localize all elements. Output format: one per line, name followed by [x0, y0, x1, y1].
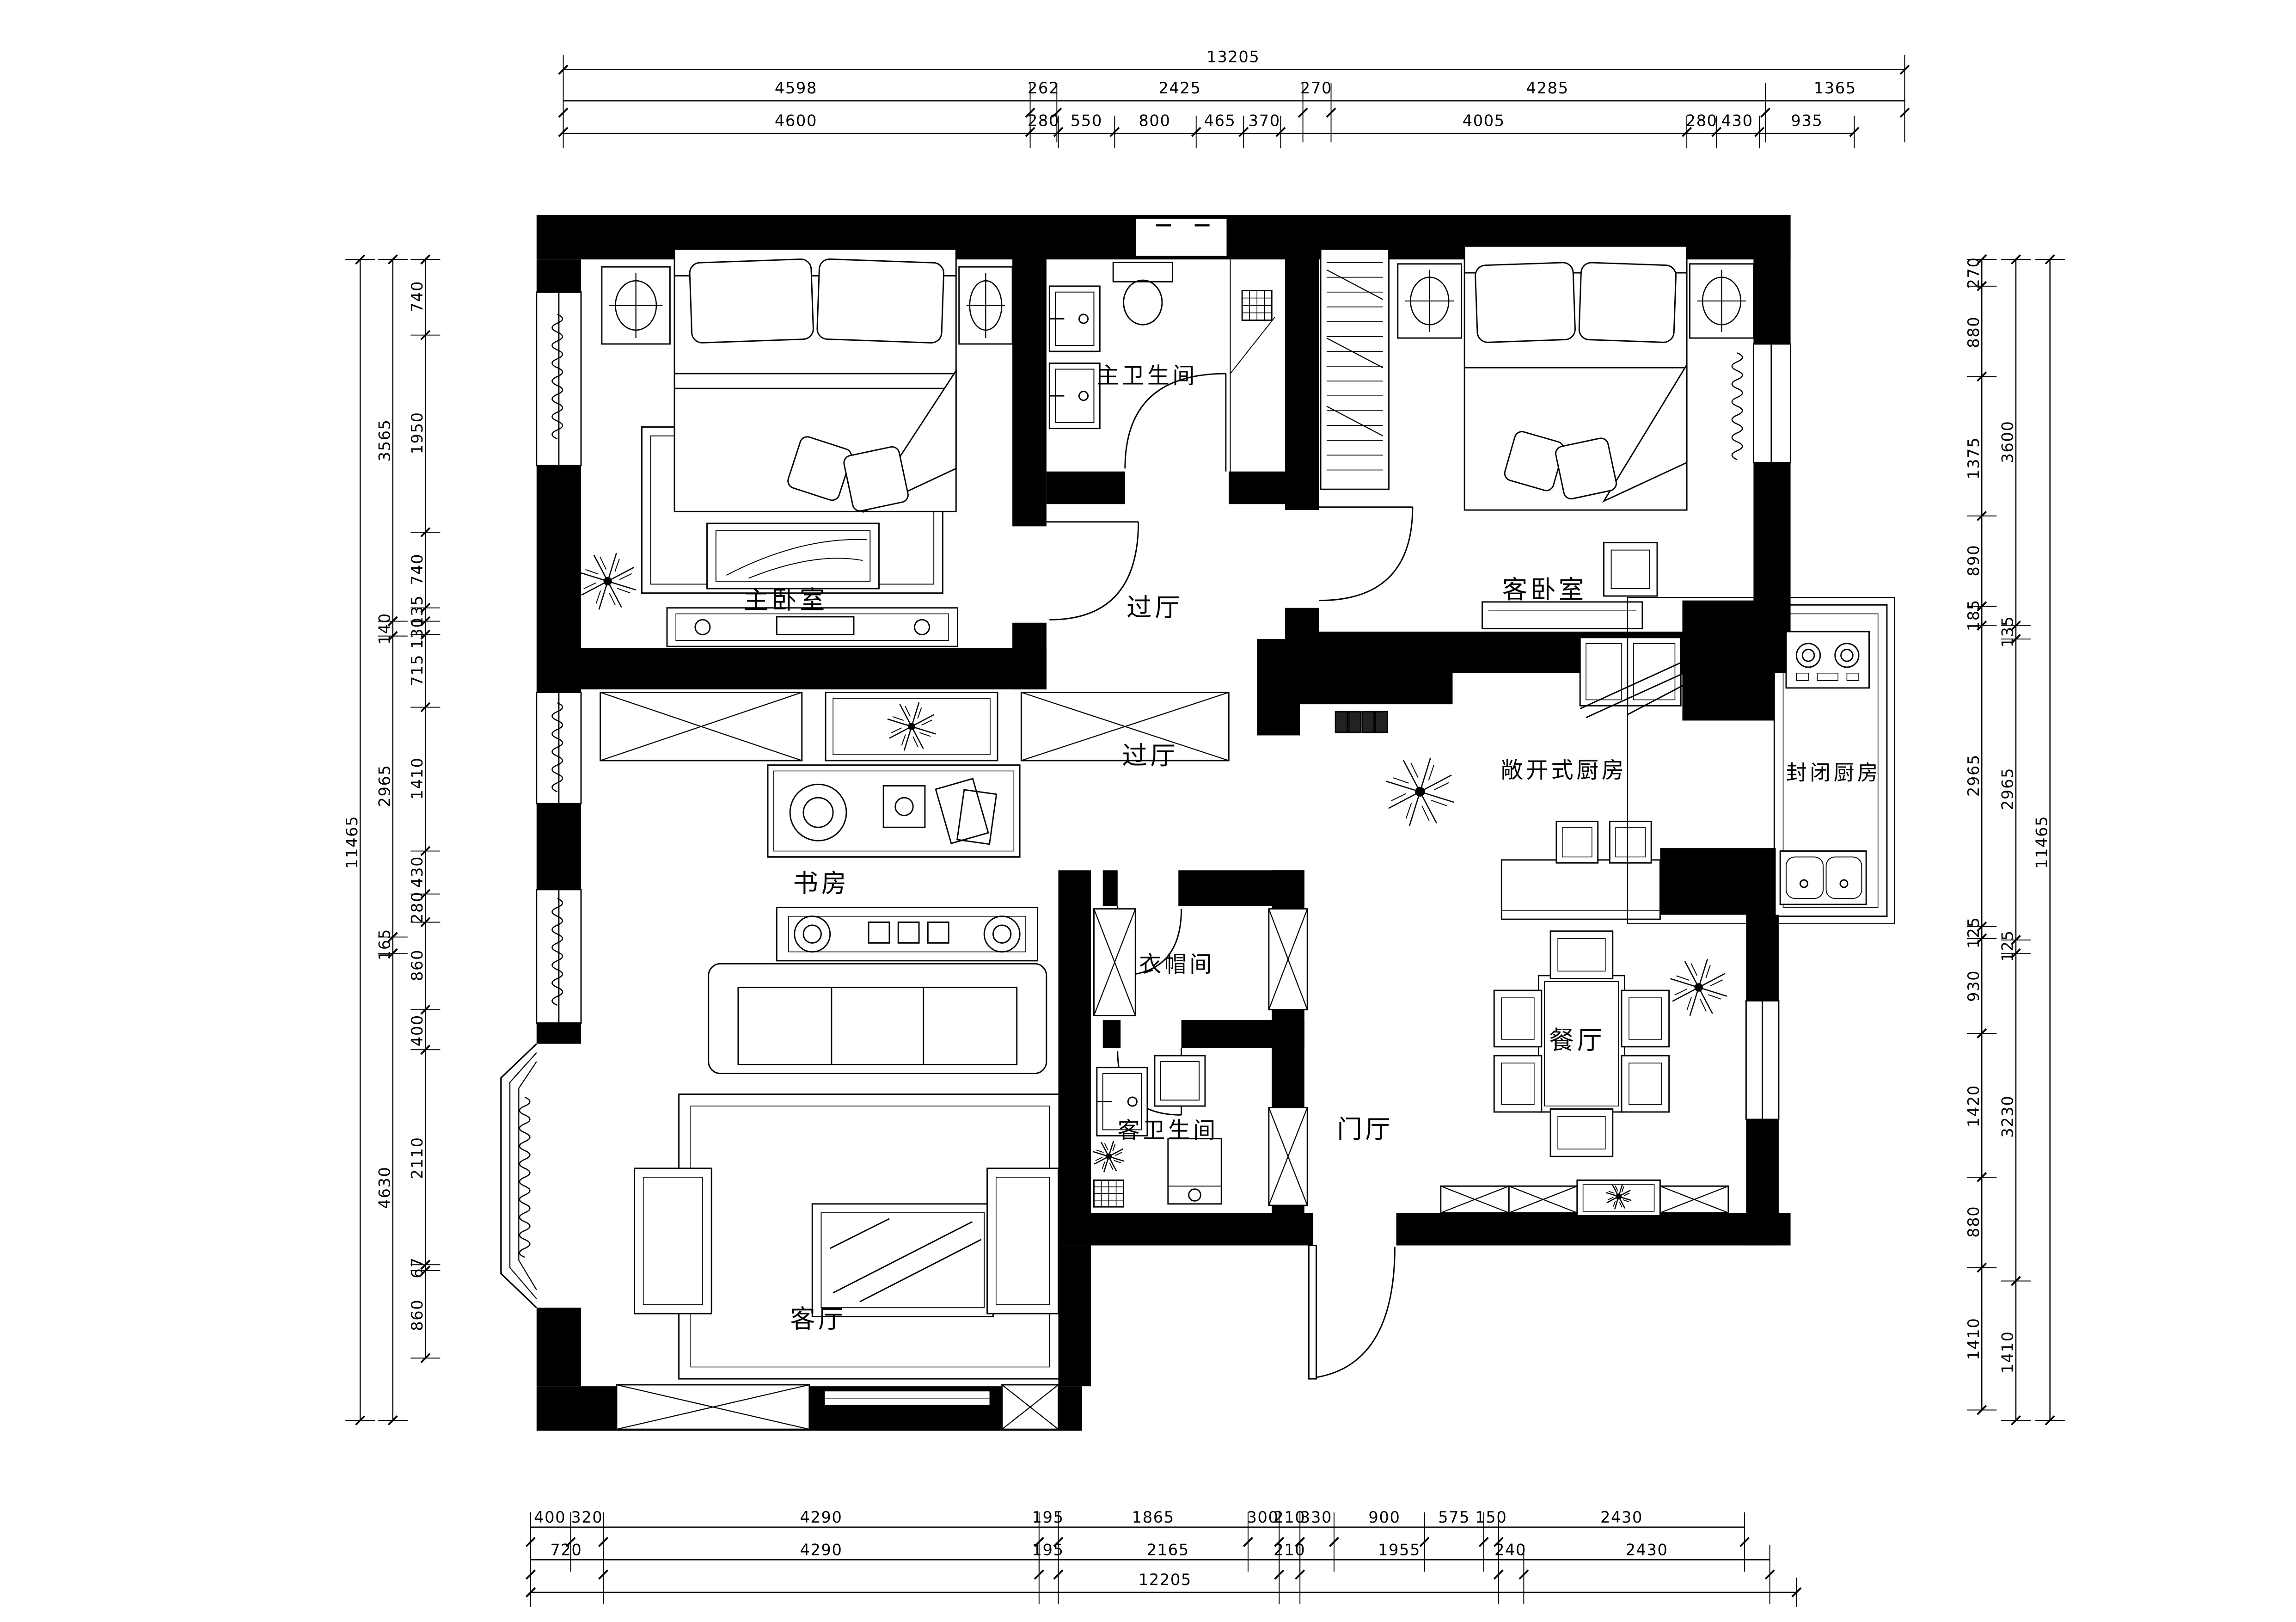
dim-label: 880 — [1965, 1206, 1983, 1238]
dim-label: 4290 — [800, 1509, 842, 1527]
dim-label: 262 — [1028, 80, 1059, 98]
dim-label: 135 — [2000, 615, 2017, 647]
console-table — [777, 907, 1037, 960]
nightstand — [1398, 264, 1462, 338]
dim-label: 400 — [409, 1014, 427, 1046]
dim-label: 280 — [1686, 113, 1718, 130]
dim-label: 185 — [1965, 599, 1983, 631]
dim-label: 67 — [409, 1257, 427, 1278]
dim-label: 125 — [2000, 930, 2017, 962]
dim-label: 195 — [1032, 1542, 1064, 1560]
dim-label: 2965 — [376, 764, 394, 807]
bed-master — [674, 249, 956, 512]
dim-label: 1410 — [1965, 1317, 1983, 1360]
floorplan-drawing — [0, 0, 2296, 1622]
room-label-cloakroom: 衣帽间 — [1139, 948, 1215, 979]
dim-label: 930 — [1965, 970, 1983, 1002]
dim-label: 1950 — [409, 412, 427, 454]
dim-label: 13205 — [1206, 49, 1260, 67]
nightstand — [602, 267, 670, 344]
dim-label: 860 — [409, 1299, 427, 1331]
dim-label: 2430 — [1625, 1542, 1668, 1560]
dim-label: 4290 — [800, 1542, 842, 1560]
dim-label: 240 — [1494, 1542, 1526, 1560]
dim-label: 860 — [409, 949, 427, 981]
door-guest-bedroom — [1319, 507, 1413, 601]
wall-cabinets-hood — [1580, 638, 1684, 718]
dim-label: 4598 — [775, 80, 817, 98]
bed-guest — [1464, 246, 1687, 510]
nightstand — [1690, 264, 1754, 338]
dim-label: 150 — [1475, 1509, 1507, 1527]
dim-label: 270 — [1965, 257, 1983, 289]
dim-label: 2110 — [409, 1137, 427, 1179]
room-label-foyer: 门厅 — [1337, 1108, 1393, 1145]
sofa — [709, 964, 1047, 1073]
room-label-open-kitchen: 敞开式厨房 — [1501, 754, 1627, 785]
dim-label: 330 — [1300, 1509, 1332, 1527]
dim-label: 2165 — [1147, 1542, 1189, 1560]
dim-label: 3600 — [2000, 420, 2017, 463]
dim-label: 320 — [571, 1509, 603, 1527]
dim-label: 1865 — [1132, 1509, 1175, 1527]
room-label-master-bedroom: 主卧室 — [743, 579, 828, 616]
dim-label: 280 — [1028, 113, 1059, 130]
dim-label: 1410 — [2000, 1331, 2017, 1373]
dim-label: 400 — [534, 1509, 566, 1527]
washing-machine — [1155, 1056, 1205, 1106]
dim-label: 715 — [409, 654, 427, 686]
dim-label: 11465 — [344, 816, 361, 869]
armchair — [634, 1168, 711, 1314]
spice-cabinets — [1335, 712, 1387, 732]
dim-label: 4600 — [775, 113, 817, 130]
room-label-master-bath: 主卫生间 — [1097, 360, 1198, 391]
room-label-guest-bath: 客卫生间 — [1118, 1114, 1218, 1145]
double-sink — [1780, 851, 1866, 904]
dim-label: 1420 — [1965, 1085, 1983, 1127]
dim-label: 165 — [376, 928, 394, 960]
dim-label: 1410 — [409, 757, 427, 799]
dim-label: 575 — [1438, 1509, 1470, 1527]
dim-label: 740 — [409, 553, 427, 585]
dim-label: 2965 — [2000, 768, 2017, 810]
room-label-hall-upper: 过厅 — [1127, 586, 1183, 623]
plumbing-shaft — [1135, 218, 1227, 256]
dim-label: 4630 — [376, 1166, 394, 1209]
dim-label: 280 — [409, 891, 427, 923]
dim-label: 195 — [1032, 1509, 1064, 1527]
dim-label: 2425 — [1158, 80, 1201, 98]
room-label-living: 客厅 — [790, 1298, 846, 1335]
study-furniture — [600, 692, 1229, 857]
armchair — [987, 1168, 1059, 1314]
dim-label: 2965 — [1965, 754, 1983, 797]
dim-label: 370 — [1249, 113, 1280, 130]
dim-label: 210 — [1274, 1542, 1305, 1560]
dim-label: 430 — [1721, 113, 1753, 130]
island-counter — [1501, 821, 1660, 919]
dim-label: 1955 — [1378, 1542, 1420, 1560]
bay-window — [501, 1044, 537, 1308]
dim-label: 4285 — [1526, 80, 1569, 98]
room-label-dining: 餐厅 — [1549, 1020, 1605, 1057]
dim-label: 130 — [409, 617, 427, 649]
living-room-furniture — [617, 907, 1061, 1429]
dim-label: 125 — [1965, 916, 1983, 948]
dim-label: 3565 — [376, 419, 394, 461]
door-master-bedroom — [1047, 522, 1139, 620]
dim-label: 11465 — [2033, 816, 2051, 869]
dim-label: 720 — [550, 1542, 582, 1560]
dim-label: 935 — [1791, 113, 1823, 130]
sideboard — [1441, 1180, 1728, 1216]
floorplan-page: 主卧室 主卫生间 过厅 客卧室 过厅 书房 敞开式厨房 封闭厨房 衣帽间 客卫生… — [0, 0, 2296, 1622]
dim-label: 1375 — [1965, 437, 1983, 479]
door-entry — [1309, 1246, 1395, 1379]
dining-furniture — [1441, 931, 1728, 1216]
toilet — [1113, 263, 1172, 325]
dim-label: 900 — [1368, 1509, 1400, 1527]
dim-label: 430 — [409, 856, 427, 888]
dim-label: 2430 — [1600, 1509, 1643, 1527]
dim-label: 1365 — [1814, 80, 1856, 98]
water-heater — [1168, 1139, 1221, 1204]
room-label-closed-kitchen: 封闭厨房 — [1786, 758, 1881, 787]
dim-label: 880 — [1965, 316, 1983, 348]
dim-label: 3230 — [2000, 1095, 2017, 1138]
dim-label: 140 — [376, 613, 394, 645]
gas-stove — [1786, 632, 1869, 688]
dim-label: 270 — [1300, 80, 1332, 98]
dim-label: 465 — [1204, 113, 1236, 130]
room-label-guest-bedroom: 客卧室 — [1502, 569, 1587, 606]
dim-label: 12205 — [1139, 1572, 1192, 1589]
dim-label: 800 — [1139, 113, 1170, 130]
dim-label: 550 — [1071, 113, 1102, 130]
nightstand — [959, 267, 1012, 344]
dim-label: 890 — [1965, 545, 1983, 577]
dim-label: 4005 — [1463, 113, 1505, 130]
room-label-study: 书房 — [793, 862, 850, 899]
desk-study — [768, 765, 1020, 857]
room-label-hall-center: 过厅 — [1122, 735, 1178, 772]
dim-label: 740 — [409, 281, 427, 313]
